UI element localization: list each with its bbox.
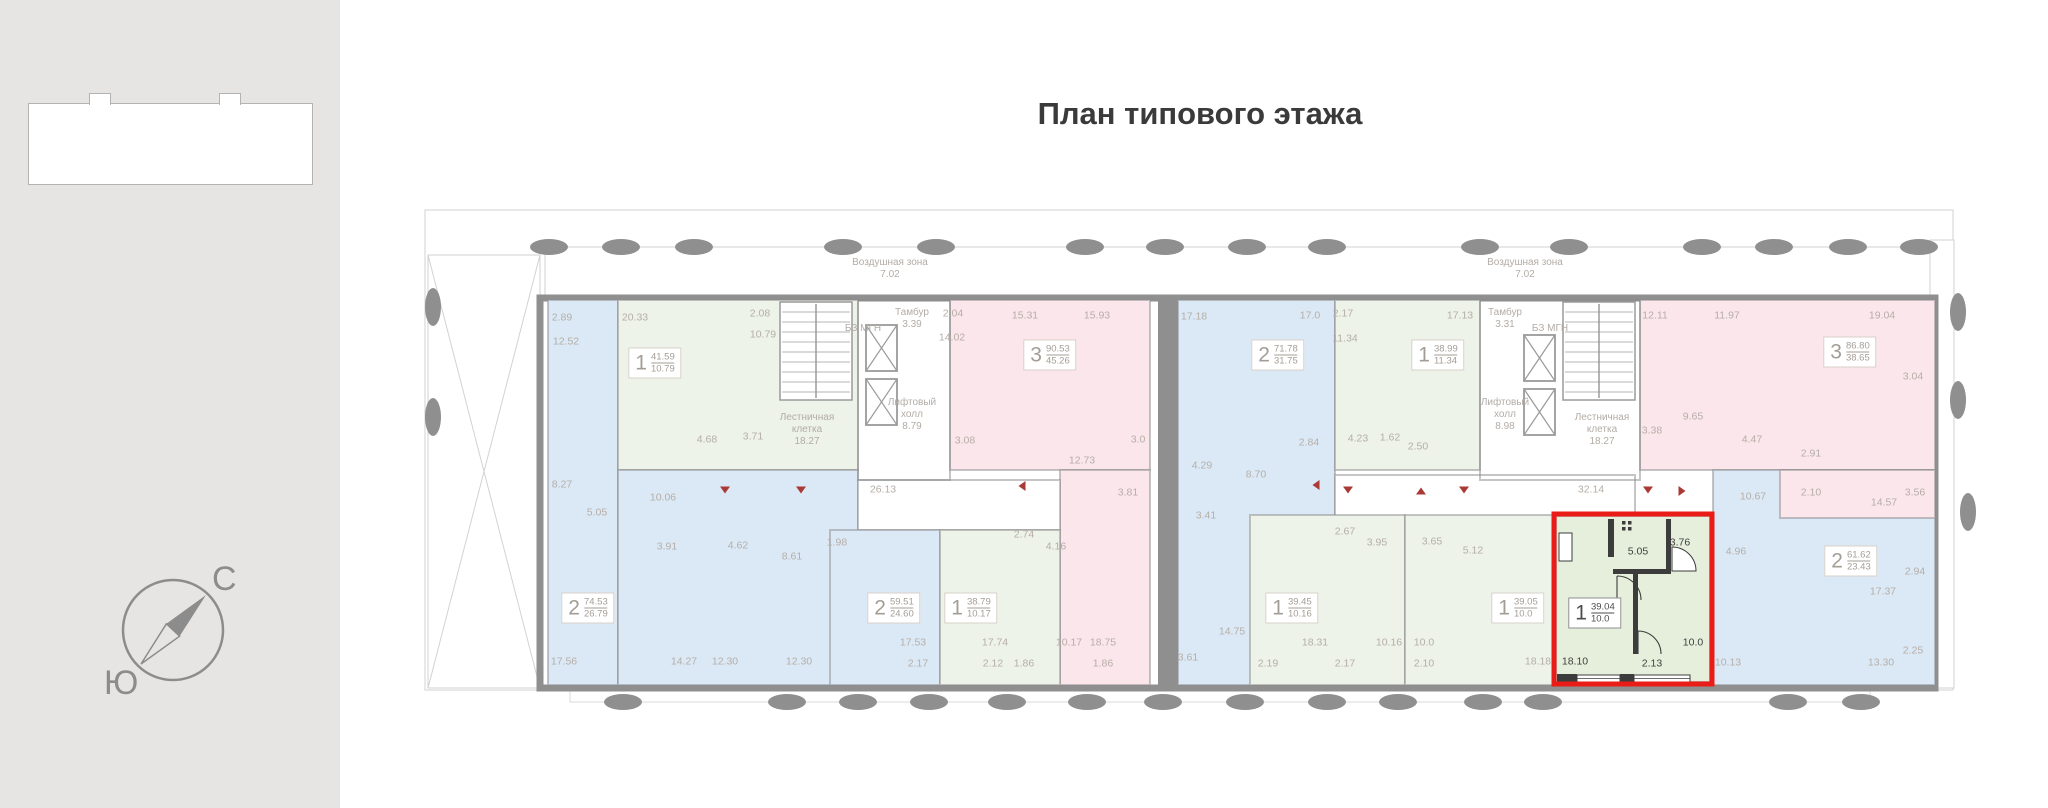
sidebar: С Ю [0,0,340,808]
region-apt-pink-strip-left[interactable] [1060,470,1150,685]
interior-wall [1608,519,1614,557]
elevator-icon [866,379,897,425]
apartment-living-area: 11.34 [1434,356,1458,367]
balcony [1144,694,1182,710]
interior-wall [1666,519,1671,574]
balcony [1755,239,1793,255]
apartment-living-area: 10.0 [1591,614,1615,625]
stove-burner-icon [1622,521,1626,525]
balcony [1226,694,1264,710]
apartment-badge[interactable]: 139.4510.16 [1265,593,1318,624]
balcony [768,694,806,710]
apartment-total-area: 61.62 [1847,550,1871,562]
apartment-badge[interactable]: 259.5124.60 [867,593,920,624]
balcony [1066,239,1104,255]
air-zone-strip [545,247,1933,298]
apartment-rooms-count: 1 [1575,603,1587,624]
region-apt-strip-left[interactable] [548,300,618,685]
balcony [1950,293,1966,331]
balcony [1146,239,1184,255]
elevator-icon [1524,335,1555,381]
building-footprint-icon [28,103,313,185]
compass-north-label: С [212,560,237,599]
elevator-icon [866,325,897,371]
footprint-tab [89,93,111,105]
staircase-left [780,302,852,400]
balcony [604,694,642,710]
apartment-rooms-count: 2 [874,598,886,619]
apartment-total-area: 41.59 [651,352,675,364]
apartment-badge[interactable]: 271.7831.75 [1251,340,1304,371]
void-section [428,255,540,688]
page-title: План типового этажа [1038,96,1363,132]
apartment-rooms-count: 1 [1418,345,1430,366]
balcony [1550,239,1588,255]
apartment-living-area: 10.79 [651,364,675,375]
balcony [988,694,1026,710]
apartment-rooms-count: 2 [1831,551,1843,572]
balcony [425,398,441,436]
interior-wall [1613,569,1669,574]
region-apt-2-74-53[interactable] [618,470,858,685]
apartment-rooms-count: 3 [1030,345,1042,366]
sink-icon [1559,533,1572,561]
apartment-total-area: 39.04 [1591,602,1615,614]
apartment-living-area: 23.43 [1847,562,1871,573]
apartment-total-area: 39.05 [1514,597,1538,609]
footprint-tab [219,93,241,105]
balcony [1524,694,1562,710]
balcony [1769,694,1807,710]
apartment-living-area: 10.0 [1514,609,1538,620]
stove-burner-icon [1628,521,1632,525]
balcony [917,239,955,255]
apartment-badge[interactable]: 386.8038.65 [1823,337,1876,368]
floor-plan: 2.8912.5220.332.0810.794.683.712.0414.02… [420,185,1965,730]
balcony [824,239,862,255]
apartment-rooms-count: 3 [1830,342,1842,363]
floor-plan-drawing [420,185,1965,730]
balcony [1379,694,1417,710]
balcony [839,694,877,710]
apartment-living-area: 45.26 [1046,356,1070,367]
apartment-total-area: 59.51 [890,597,914,609]
balcony [1683,239,1721,255]
apartment-total-area: 39.45 [1288,597,1312,609]
balcony [1464,694,1502,710]
apartment-rooms-count: 2 [1258,345,1270,366]
region-apt-1-38-99[interactable] [1335,300,1480,470]
apartment-rooms-count: 2 [568,598,580,619]
apartment-rooms-count: 1 [951,598,963,619]
apartment-living-area: 26.79 [584,609,608,620]
balcony [1461,239,1499,255]
section-divider-wall [1158,298,1178,688]
apartment-rooms-count: 1 [1498,598,1510,619]
apartment-living-area: 10.16 [1288,609,1312,620]
apartment-badge[interactable]: 138.7910.17 [944,593,997,624]
balcony [1960,493,1976,531]
apartment-badge[interactable]: 138.9911.34 [1411,340,1464,371]
balcony [425,288,441,326]
apartment-badge[interactable]: 139.0510.0 [1491,593,1544,624]
screenshot-root: С Ю План типового этажа [0,0,2048,808]
apartment-badge[interactable]: 390.5345.26 [1023,340,1076,371]
region-apt-3-86-80[interactable] [1640,300,1935,470]
balcony [1308,694,1346,710]
apartment-regions [548,300,1935,685]
apartment-rooms-count: 1 [1272,598,1284,619]
apartment-badge-selected[interactable]: 139.0410.0 [1568,598,1621,629]
apartment-living-area: 38.65 [1846,353,1870,364]
apartment-total-area: 38.79 [967,597,991,609]
balcony [675,239,713,255]
balcony [1829,239,1867,255]
apartment-total-area: 38.99 [1434,344,1458,356]
apartment-rooms-count: 1 [635,353,647,374]
compass-south-label: Ю [104,664,138,703]
apartment-living-area: 10.17 [967,609,991,620]
balcony [1950,381,1966,419]
apartment-total-area: 74.53 [584,597,608,609]
region-corridor-left [858,480,1060,530]
apartment-living-area: 24.60 [890,609,914,620]
apartment-living-area: 31.75 [1274,356,1298,367]
apartment-badge[interactable]: 141.5910.79 [628,348,681,379]
compass: С Ю [100,560,270,710]
elevator-icon [1524,389,1555,435]
region-apt-3-90-53[interactable] [950,300,1150,470]
balcony [1308,239,1346,255]
apartment-badge[interactable]: 274.5326.79 [561,593,614,624]
balcony [1842,694,1880,710]
apartment-total-area: 86.80 [1846,341,1870,353]
interior-wall [1633,574,1638,654]
balcony [910,694,948,710]
stove-burner-icon [1628,527,1632,531]
balcony [1900,239,1938,255]
balcony [1228,239,1266,255]
balcony [530,239,568,255]
balcony [1068,694,1106,710]
apartment-badge[interactable]: 261.6223.43 [1824,546,1877,577]
apartment-total-area: 71.78 [1274,344,1298,356]
balcony [602,239,640,255]
stove-burner-icon [1622,527,1626,531]
staircase-right [1563,302,1635,400]
region-apt-pink-ext-right[interactable] [1780,470,1935,518]
apartment-total-area: 90.53 [1046,344,1070,356]
